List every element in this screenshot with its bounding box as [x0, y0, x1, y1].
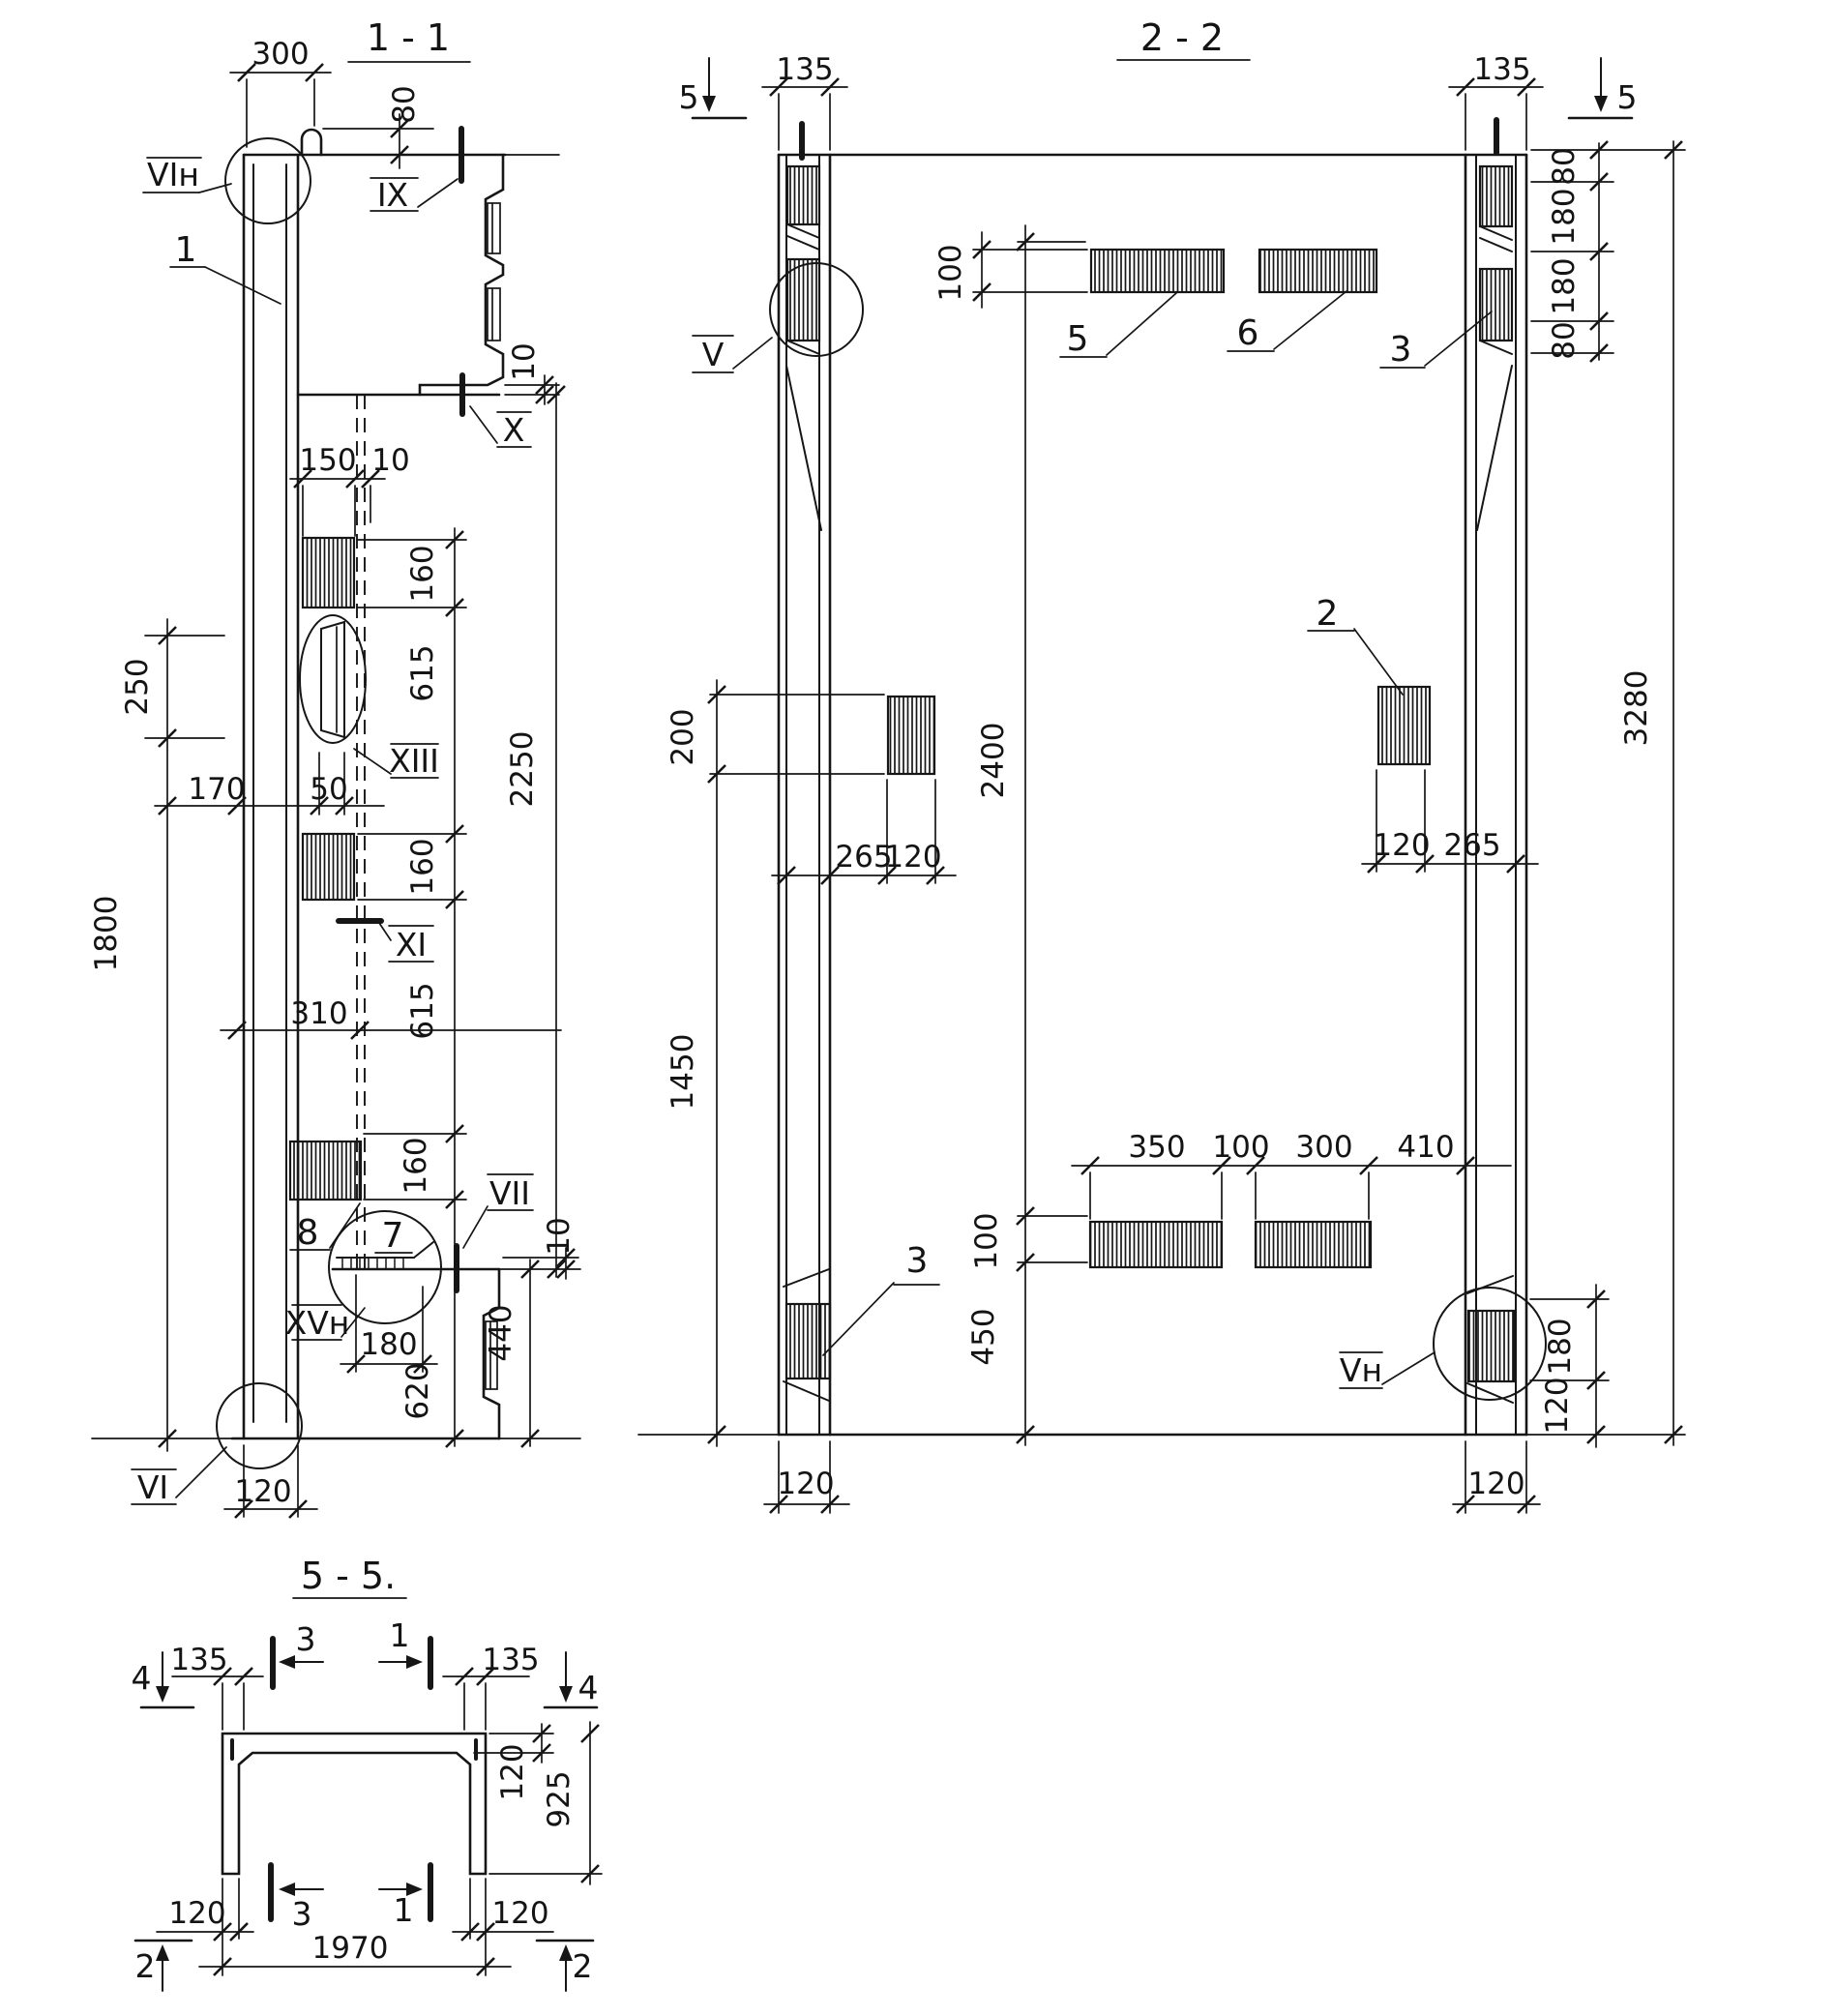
dim-100-top: 100	[933, 244, 968, 301]
dim-2400: 2400	[976, 723, 1011, 799]
dim-135-left-55: 135	[170, 1643, 227, 1677]
section-arrow-1-bottom: 1	[394, 1891, 414, 1929]
view-2-2: 2 - 2 5 5 135 135 80 180 180 80 3280 100…	[638, 16, 1685, 1513]
section-arrow-4-right: 4	[578, 1669, 599, 1706]
section-label-vi: VI	[137, 1468, 168, 1506]
dim-180-b: 180	[1547, 257, 1582, 314]
rib-embed-l2	[787, 259, 819, 341]
dim-10-mid: 10	[371, 443, 409, 478]
view-5-5: 5 - 5. 4 4 135 135 3 1 120 925 120 120 3…	[132, 1555, 603, 1991]
dim-180: 180	[360, 1327, 417, 1362]
dim-3280: 3280	[1619, 670, 1654, 747]
dim-450: 450	[966, 1308, 1001, 1365]
detail-circle-vi	[217, 1383, 302, 1468]
rib-embed-r1	[1480, 166, 1512, 226]
view-1-1: 1 - 1 300 80 10 150 10 160 615 160 615 1…	[89, 16, 580, 1518]
dim-200: 200	[666, 708, 700, 765]
dim-120-mid-left: 120	[884, 840, 941, 875]
dim-150: 150	[299, 443, 356, 478]
section-label-vii: VII	[489, 1174, 530, 1212]
dim-135-right: 135	[1473, 52, 1530, 87]
dim-300: 300	[1295, 1130, 1352, 1165]
section-label-v: V	[702, 336, 725, 373]
embed-plate-bottom-1	[1090, 1222, 1222, 1267]
dim-120-bottom-right: 120	[1467, 1467, 1524, 1501]
dim-160-b: 160	[405, 838, 440, 895]
section-arrow-4-left: 4	[132, 1659, 152, 1697]
view-2-2-title: 2 - 2	[1140, 16, 1224, 59]
section-label-vn: Vн	[1340, 1351, 1382, 1389]
dim-180-a: 180	[1547, 188, 1582, 245]
view-5-5-title: 5 - 5.	[301, 1555, 396, 1597]
dim-1800: 1800	[89, 896, 124, 972]
dim-615-b: 615	[405, 982, 440, 1039]
section-label-xi: XI	[396, 926, 427, 964]
part-number-6: 6	[1237, 313, 1259, 353]
lifting-hook	[302, 130, 321, 155]
dim-80: 80	[387, 85, 422, 123]
embed-plate-5	[1091, 250, 1224, 292]
embed-plate-2	[1378, 687, 1430, 764]
part-number-8: 8	[297, 1213, 319, 1253]
dim-440: 440	[484, 1304, 518, 1361]
embed-plate-mid-left	[888, 697, 934, 774]
embed-plate-8	[290, 1141, 361, 1200]
section-arrow-2-right: 2	[573, 1947, 593, 1985]
rib-embed-r3	[1468, 1311, 1514, 1381]
rib-embed-l3	[786, 1304, 830, 1379]
drawing-sheet: 1 - 1 300 80 10 150 10 160 615 160 615 1…	[0, 0, 1835, 2016]
dim-1970: 1970	[312, 1931, 389, 1966]
section-arrow-5-left: 5	[679, 78, 699, 116]
section-arrow-1-top: 1	[390, 1616, 410, 1654]
part-number-1: 1	[175, 230, 197, 270]
rib-embed-l1	[787, 166, 819, 224]
dim-250: 250	[120, 658, 155, 715]
section-label-ix: IX	[377, 176, 408, 214]
dim-80-a: 80	[1547, 147, 1582, 185]
dim-410: 410	[1397, 1130, 1454, 1165]
dim-120-bottom-left-55: 120	[168, 1896, 225, 1931]
plate-7-hatch	[342, 1258, 403, 1269]
dim-100-bottom-row: 100	[1212, 1130, 1269, 1165]
dim-10-top: 10	[507, 342, 542, 380]
dim-120-chain: 120	[1540, 1377, 1575, 1434]
dim-925: 925	[542, 1770, 577, 1827]
part-number-3-top: 3	[1390, 330, 1412, 370]
rib-embed-r2	[1480, 269, 1512, 341]
embed-angle-top-1	[488, 203, 500, 253]
dim-350: 350	[1128, 1130, 1185, 1165]
embed-plate-2	[303, 834, 354, 900]
structural-drawing: 1 - 1 300 80 10 150 10 160 615 160 615 1…	[0, 0, 1835, 2016]
view-2-2-linework	[638, 120, 1685, 1435]
dim-620: 620	[400, 1362, 435, 1419]
part-number-5: 5	[1067, 319, 1089, 359]
dim-160-c: 160	[399, 1137, 433, 1194]
dim-80-b: 80	[1547, 321, 1582, 359]
embed-plate-bottom-2	[1256, 1222, 1371, 1267]
dim-310: 310	[290, 996, 347, 1031]
dim-135-left: 135	[776, 52, 833, 87]
section-arrow-3-top: 3	[296, 1620, 316, 1658]
dim-120-mid-right: 120	[1373, 828, 1430, 863]
dim-120-bottom-left: 120	[777, 1467, 834, 1501]
section-arrow-2-left: 2	[135, 1947, 156, 1985]
embed-plate-6	[1259, 250, 1376, 292]
dim-120-bottom-right-55: 120	[491, 1896, 548, 1931]
section-label-xiii: XIII	[389, 742, 439, 780]
section-label-x: X	[503, 411, 525, 449]
section-label-vin: VIн	[147, 156, 199, 193]
part-number-2: 2	[1317, 594, 1339, 634]
embed-angle-top-2	[488, 288, 500, 341]
section-arrow-3-bottom: 3	[292, 1895, 312, 1933]
detail-oval-xiii	[300, 615, 366, 743]
dim-120-slab: 120	[495, 1743, 530, 1800]
section-arrow-5-right: 5	[1617, 78, 1638, 116]
dim-135-right-55: 135	[482, 1643, 539, 1677]
part-number-7: 7	[382, 1216, 404, 1256]
view-1-1-title: 1 - 1	[367, 16, 450, 59]
dim-300: 300	[252, 37, 309, 72]
section-label-xvn: XVн	[285, 1304, 350, 1342]
dim-160-a: 160	[405, 545, 440, 602]
view-5-5-texts: 5 - 5. 4 4 135 135 3 1 120 925 120 120 3…	[132, 1555, 599, 1985]
dim-100-bottom: 100	[969, 1212, 1004, 1269]
view-5-5-linework	[222, 1598, 486, 1874]
dim-50: 50	[310, 772, 347, 807]
dim-2250: 2250	[505, 731, 540, 808]
dim-615-a: 615	[405, 644, 440, 701]
dim-10-bottom: 10	[542, 1217, 577, 1255]
dim-120: 120	[234, 1474, 291, 1509]
embed-plate-1	[303, 538, 354, 608]
dim-170: 170	[188, 772, 245, 807]
dim-265-right: 265	[1443, 828, 1500, 863]
part-number-3-bottom: 3	[906, 1241, 929, 1281]
dim-1450: 1450	[666, 1034, 700, 1111]
dim-180-bottom: 180	[1543, 1318, 1578, 1375]
